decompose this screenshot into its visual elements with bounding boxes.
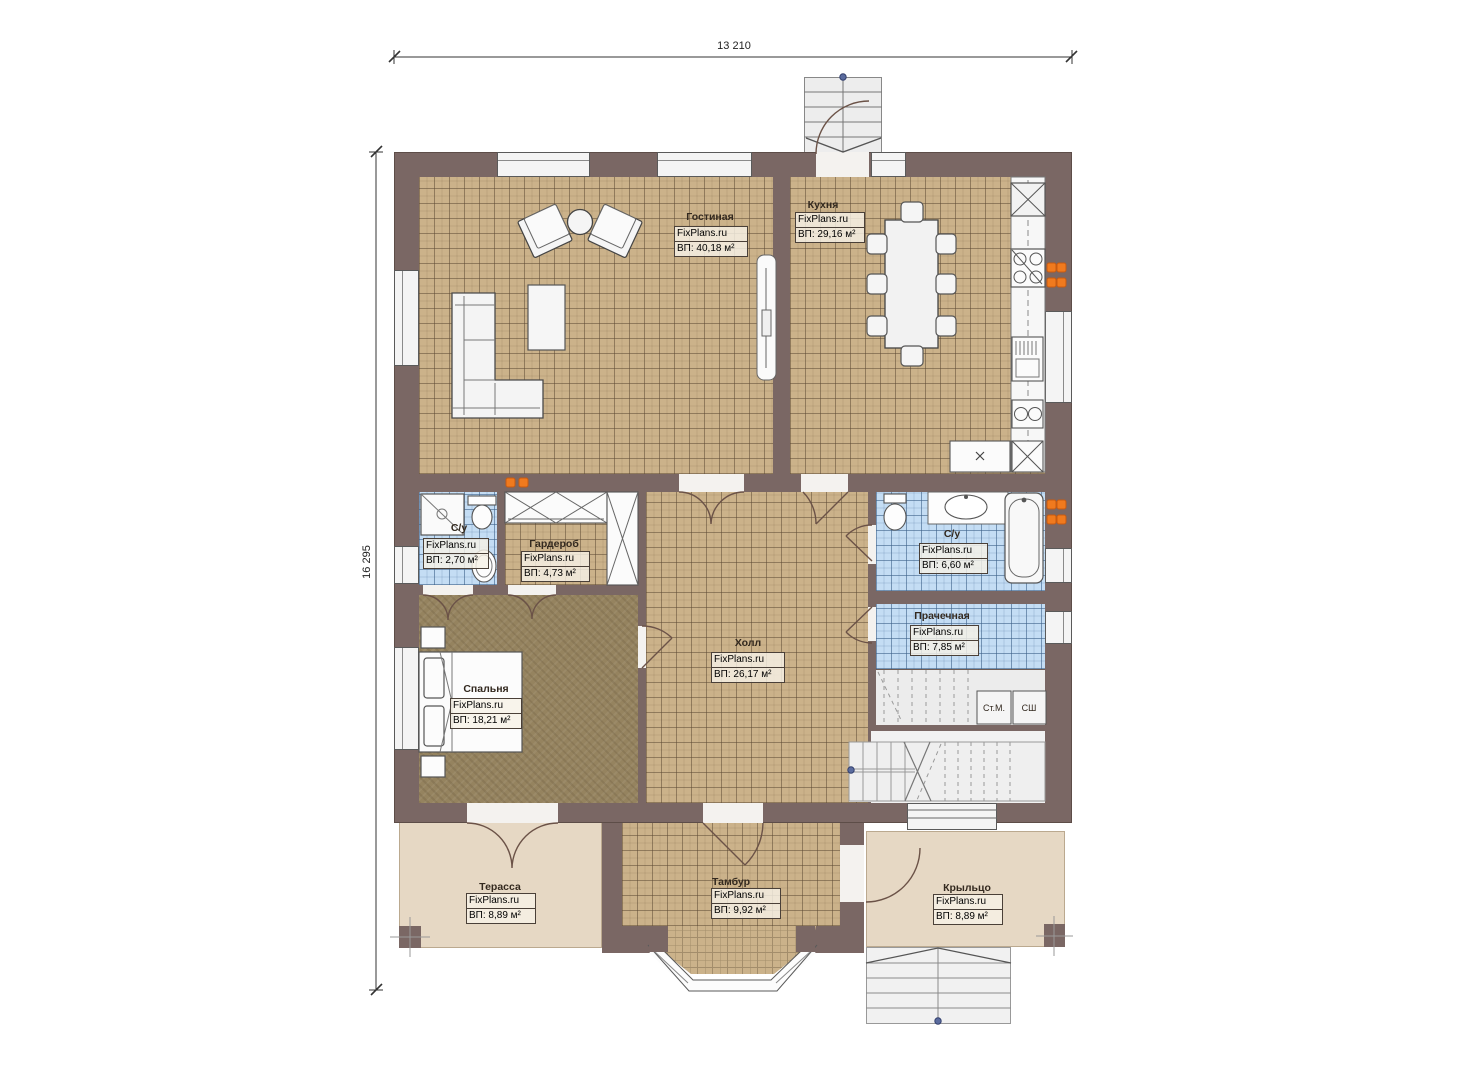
svg-text:Ст.М.: Ст.М. [983, 703, 1005, 713]
svg-text:СШ: СШ [1022, 703, 1037, 713]
